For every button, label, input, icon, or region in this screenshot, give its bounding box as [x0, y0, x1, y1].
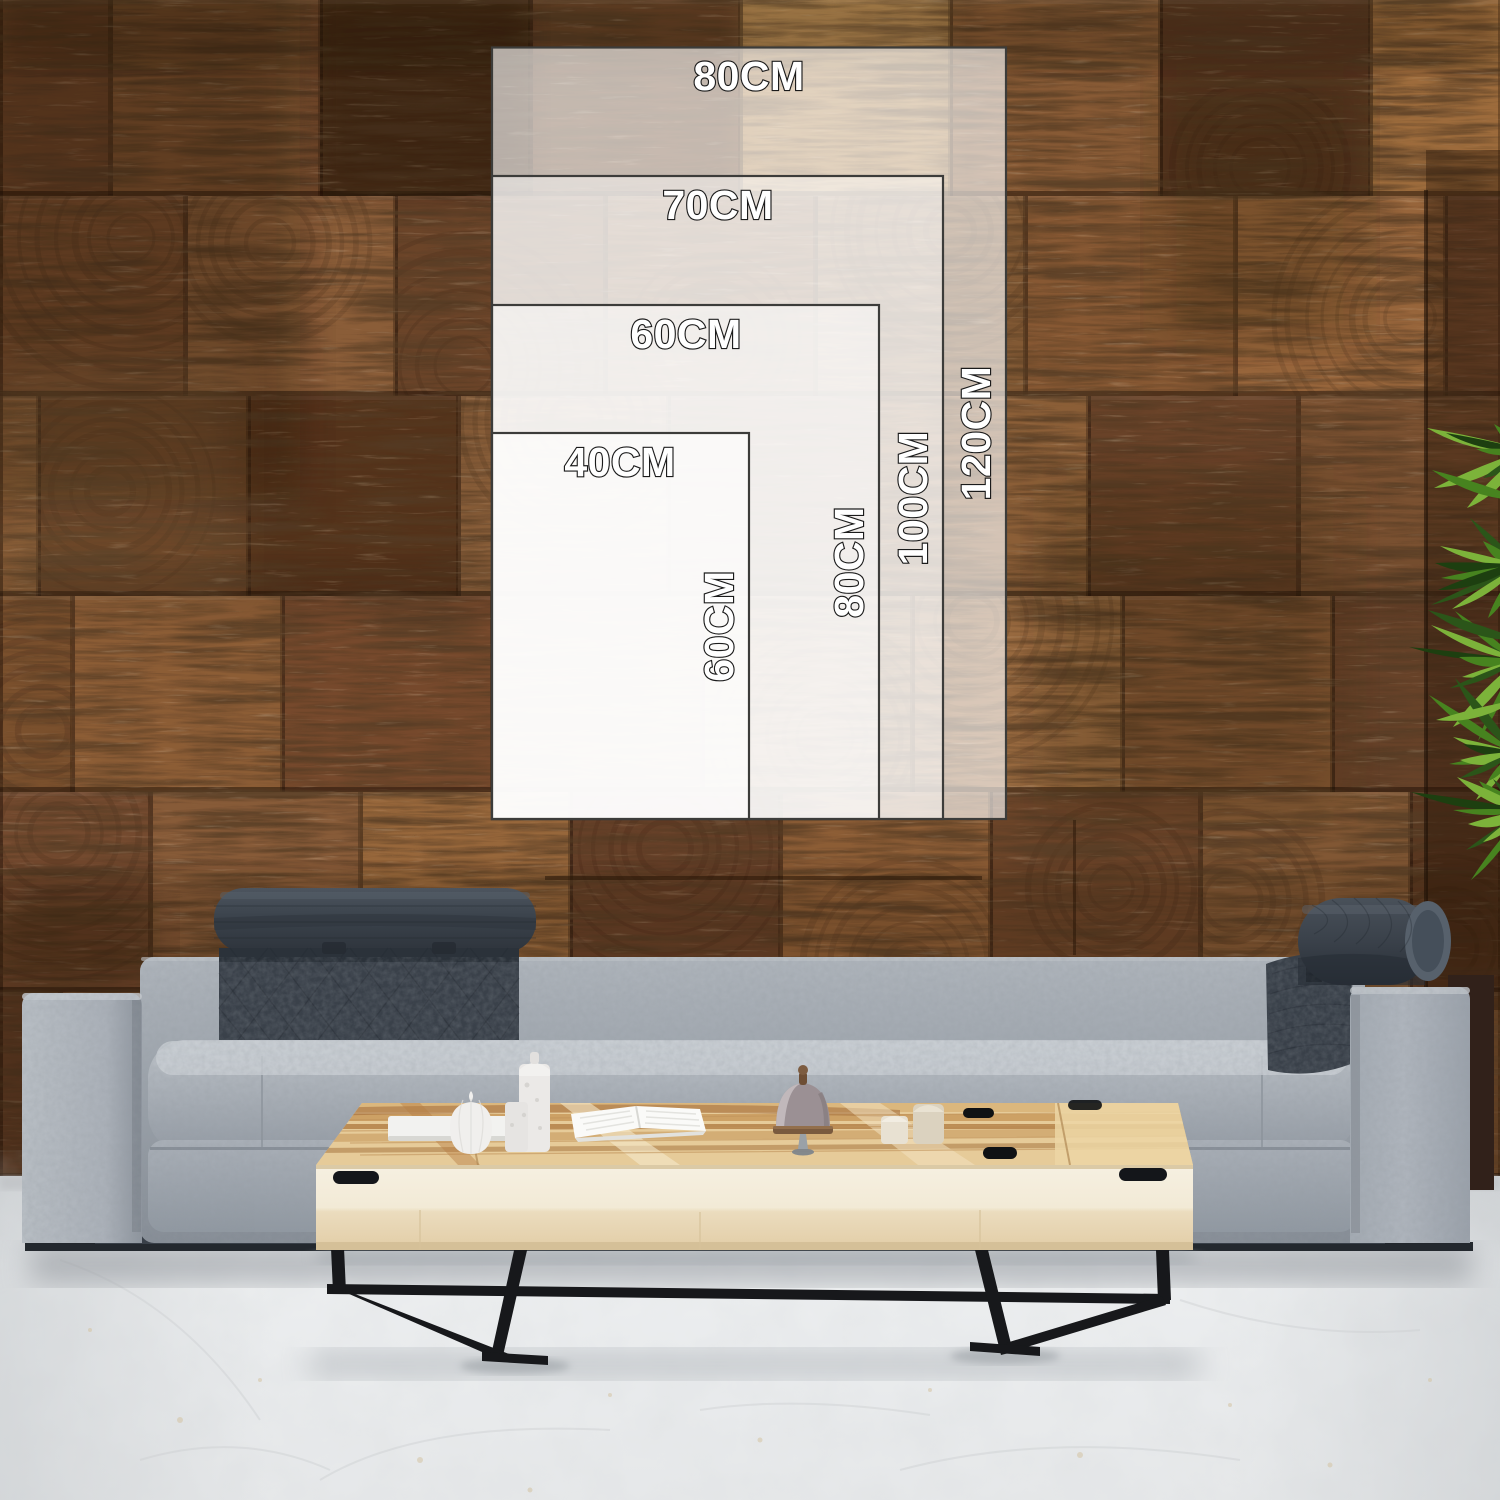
svg-text:40CM: 40CM: [564, 439, 675, 485]
svg-text:80CM: 80CM: [826, 506, 872, 617]
svg-text:120CM: 120CM: [953, 366, 999, 501]
svg-text:60CM: 60CM: [696, 570, 742, 681]
svg-text:60CM: 60CM: [630, 311, 741, 357]
svg-text:80CM: 80CM: [693, 53, 804, 99]
svg-text:100CM: 100CM: [890, 431, 936, 566]
svg-text:70CM: 70CM: [662, 182, 773, 228]
